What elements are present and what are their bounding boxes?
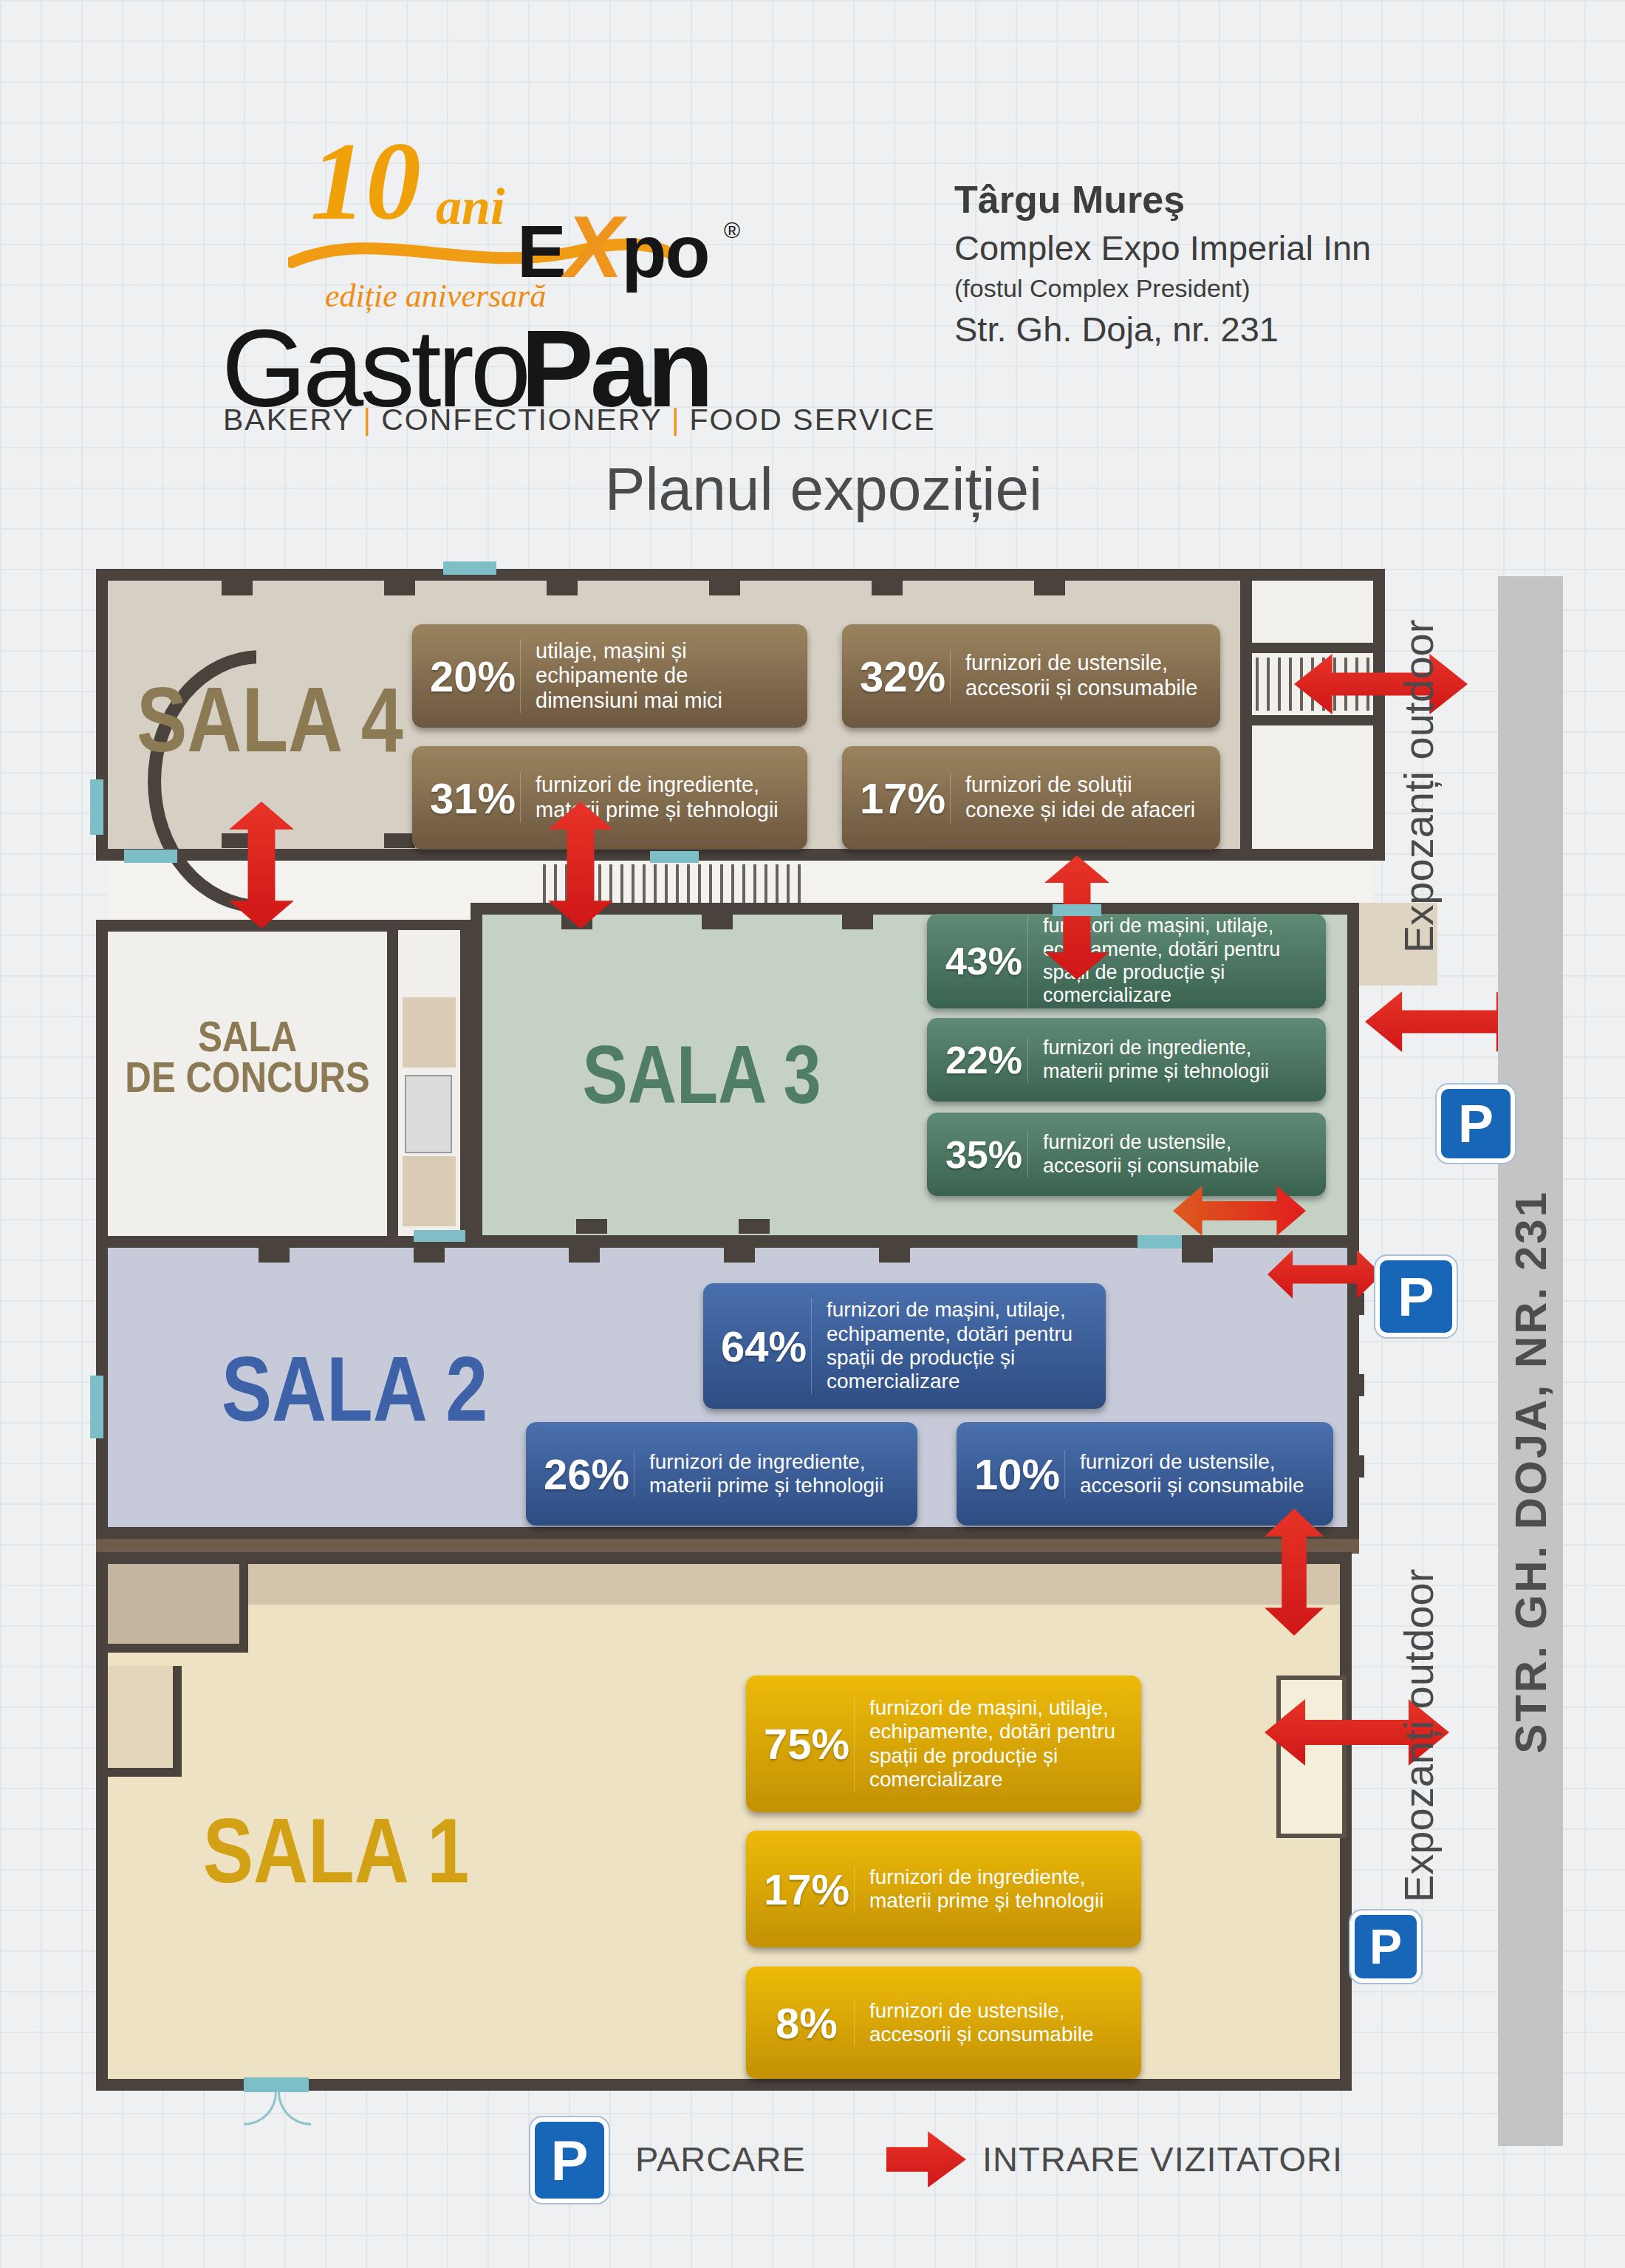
- stat-percent: 10%: [970, 1449, 1064, 1499]
- pillar: [576, 1219, 607, 1234]
- door-swing-icon: [278, 2092, 311, 2125]
- stat-box-sala2-1: 26% furnizori de ingrediente, materii pr…: [526, 1422, 917, 1526]
- stat-box-sala2-2: 10% furnizori de ustensile, accesorii și…: [957, 1422, 1333, 1526]
- stat-percent: 35%: [940, 1133, 1027, 1177]
- pillar: [547, 581, 578, 595]
- pillar: [384, 581, 415, 595]
- room-label-sala3: SALA 3: [582, 1036, 821, 1114]
- door: [1137, 1235, 1182, 1249]
- venue-complex: Complex Expo Imperial Inn: [954, 228, 1471, 268]
- door: [90, 1376, 103, 1438]
- stat-box-sala3-0: 43% furnizori de mașini, utilaje, echipa…: [927, 914, 1326, 1008]
- stat-box-sala4-3: 17% furnizori de soluții conexe și idei …: [842, 746, 1220, 850]
- door: [443, 561, 496, 575]
- sala1-left-room2: [108, 1666, 182, 1777]
- stat-percent: 43%: [940, 939, 1027, 983]
- stat-text: furnizori de ingrediente, materii prime …: [1027, 1036, 1313, 1083]
- stat-text: furnizori de ustensile, accesorii și con…: [950, 651, 1207, 700]
- stat-text: furnizori de ustensile, accesorii și con…: [1064, 1450, 1320, 1498]
- logo-tagline: BAKERY|CONFECTIONERY|FOOD SERVICE: [223, 403, 936, 437]
- annex-wall-1: [1248, 643, 1378, 653]
- legend-entrance-arrow: [886, 2131, 966, 2187]
- legend-parking-label: PARCARE: [635, 2139, 806, 2179]
- stat-percent: 26%: [539, 1449, 634, 1499]
- door: [1053, 904, 1101, 916]
- stat-text: furnizori de ustensile, accesorii și con…: [1027, 1131, 1313, 1178]
- stat-box-sala4-2: 31% furnizori de ingrediente, materii pr…: [412, 746, 807, 850]
- venue-city: Târgu Mureş: [954, 177, 1471, 222]
- pillar: [702, 915, 733, 929]
- room-label-sala2: SALA 2: [222, 1345, 488, 1433]
- door: [650, 851, 699, 863]
- outdoor-label-top: Expozanți outdoor: [1395, 606, 1443, 953]
- stat-text: furnizori de ustensile, accesorii și con…: [854, 1999, 1128, 2047]
- sala1-left-room: [108, 1564, 248, 1653]
- parking-symbol: P: [1369, 1919, 1402, 1975]
- pillar: [709, 581, 740, 595]
- sala1-corridor-strip: [108, 1564, 1340, 1605]
- venue-block: Târgu Mureş Complex Expo Imperial Inn (f…: [954, 177, 1471, 349]
- stat-text: utilaje, mașini și echipamente de dimens…: [520, 639, 794, 714]
- room-label-sala4: SALA 4: [137, 676, 403, 764]
- parking-symbol: P: [1458, 1093, 1494, 1154]
- door: [90, 779, 103, 835]
- logo-expo: EXpo: [517, 203, 709, 290]
- door: [124, 850, 177, 863]
- page-title: Planul expoziției: [605, 454, 1043, 524]
- stat-text: furnizori de mașini, utilaje, echipament…: [854, 1696, 1128, 1792]
- legend-entrance-label: INTRARE VIZITATORI: [982, 2139, 1343, 2179]
- wall-tick: [1353, 1455, 1364, 1478]
- stat-box-sala3-1: 22% furnizori de ingrediente, materii pr…: [927, 1018, 1326, 1101]
- stat-percent: 17%: [855, 773, 950, 823]
- pillar: [384, 833, 415, 848]
- stat-box-sala1-0: 75% furnizori de mașini, utilaje, echipa…: [746, 1676, 1141, 1812]
- pillar: [1182, 1248, 1213, 1263]
- stat-box-sala4-1: 32% furnizori de ustensile, accesorii și…: [842, 624, 1220, 728]
- stat-box-sala2-0: 64% furnizori de mașini, utilaje, echipa…: [703, 1283, 1106, 1409]
- stat-percent: 32%: [855, 652, 950, 701]
- stat-text: furnizori de ingrediente, materii prime …: [854, 1865, 1128, 1913]
- venue-former-name: (fostul Complex President): [954, 274, 1471, 303]
- stat-percent: 31%: [425, 773, 520, 823]
- street-label: STR. GH. DOJA, NR. 231: [1505, 1190, 1556, 1754]
- pillar: [1034, 581, 1065, 595]
- parking-symbol: P: [551, 2128, 589, 2193]
- street-bar: STR. GH. DOJA, NR. 231: [1498, 576, 1563, 2146]
- parking-symbol: P: [1397, 1265, 1434, 1328]
- pillar: [414, 1248, 445, 1263]
- stat-box-sala3-2: 35% furnizori de ustensile, accesorii și…: [927, 1113, 1326, 1196]
- pillar: [222, 581, 253, 595]
- door-swing-icon: [244, 2092, 277, 2125]
- parking-sign-3: P: [1350, 1910, 1421, 1983]
- pillar: [872, 581, 903, 595]
- stat-percent: 8%: [759, 1998, 854, 2048]
- stat-box-sala1-2: 8% furnizori de ustensile, accesorii și …: [746, 1967, 1141, 2079]
- legend-parking-sign: P: [530, 2117, 609, 2203]
- venue-address: Str. Gh. Doja, nr. 231: [954, 309, 1471, 349]
- pillar: [259, 1248, 290, 1263]
- logo-anniversary-number: 10: [310, 137, 421, 225]
- outdoor-label-bottom: Expozanți outdoor: [1395, 1548, 1443, 1902]
- corridor-block-1: [403, 997, 456, 1068]
- annex-wall-2: [1248, 715, 1378, 725]
- pillar: [724, 1248, 755, 1263]
- stat-percent: 64%: [716, 1322, 811, 1371]
- stat-box-sala1-1: 17% furnizori de ingrediente, materii pr…: [746, 1831, 1141, 1947]
- parking-sign-1: P: [1437, 1085, 1515, 1163]
- stat-text: furnizori de mașini, utilaje, echipament…: [811, 1298, 1092, 1394]
- stat-text: furnizori de ingrediente, materii prime …: [520, 773, 794, 822]
- pillar: [842, 915, 873, 929]
- room-label-sala-concurs: SALA DE CONCURS: [125, 1016, 369, 1097]
- room-label-sala1: SALA 1: [203, 1807, 470, 1895]
- door: [414, 1230, 465, 1242]
- stat-box-sala4-0: 20% utilaje, mașini și echipamente de di…: [412, 624, 807, 728]
- corridor-table: [405, 1075, 452, 1153]
- logo-registered: ®: [724, 218, 740, 243]
- wall-tick: [1353, 1374, 1364, 1396]
- door: [244, 2077, 309, 2092]
- pillar: [739, 1219, 770, 1234]
- stat-percent: 17%: [759, 1865, 854, 1914]
- pillar: [569, 1248, 600, 1263]
- stat-text: furnizori de soluții conexe și idei de a…: [950, 773, 1207, 822]
- pillar: [879, 1248, 910, 1263]
- logo: 10 ani ediție aniversară Gastro EXpo ® P…: [222, 137, 783, 410]
- stat-percent: 20%: [425, 652, 520, 701]
- stat-text: furnizori de ingrediente, materii prime …: [634, 1450, 904, 1498]
- sala1-annex: [1276, 1676, 1347, 1838]
- band-sala2-sala1: [96, 1539, 1359, 1554]
- stat-percent: 75%: [759, 1719, 854, 1769]
- parking-sign-2: P: [1375, 1256, 1457, 1337]
- stat-percent: 22%: [940, 1038, 1027, 1082]
- corridor-block-2: [403, 1156, 456, 1226]
